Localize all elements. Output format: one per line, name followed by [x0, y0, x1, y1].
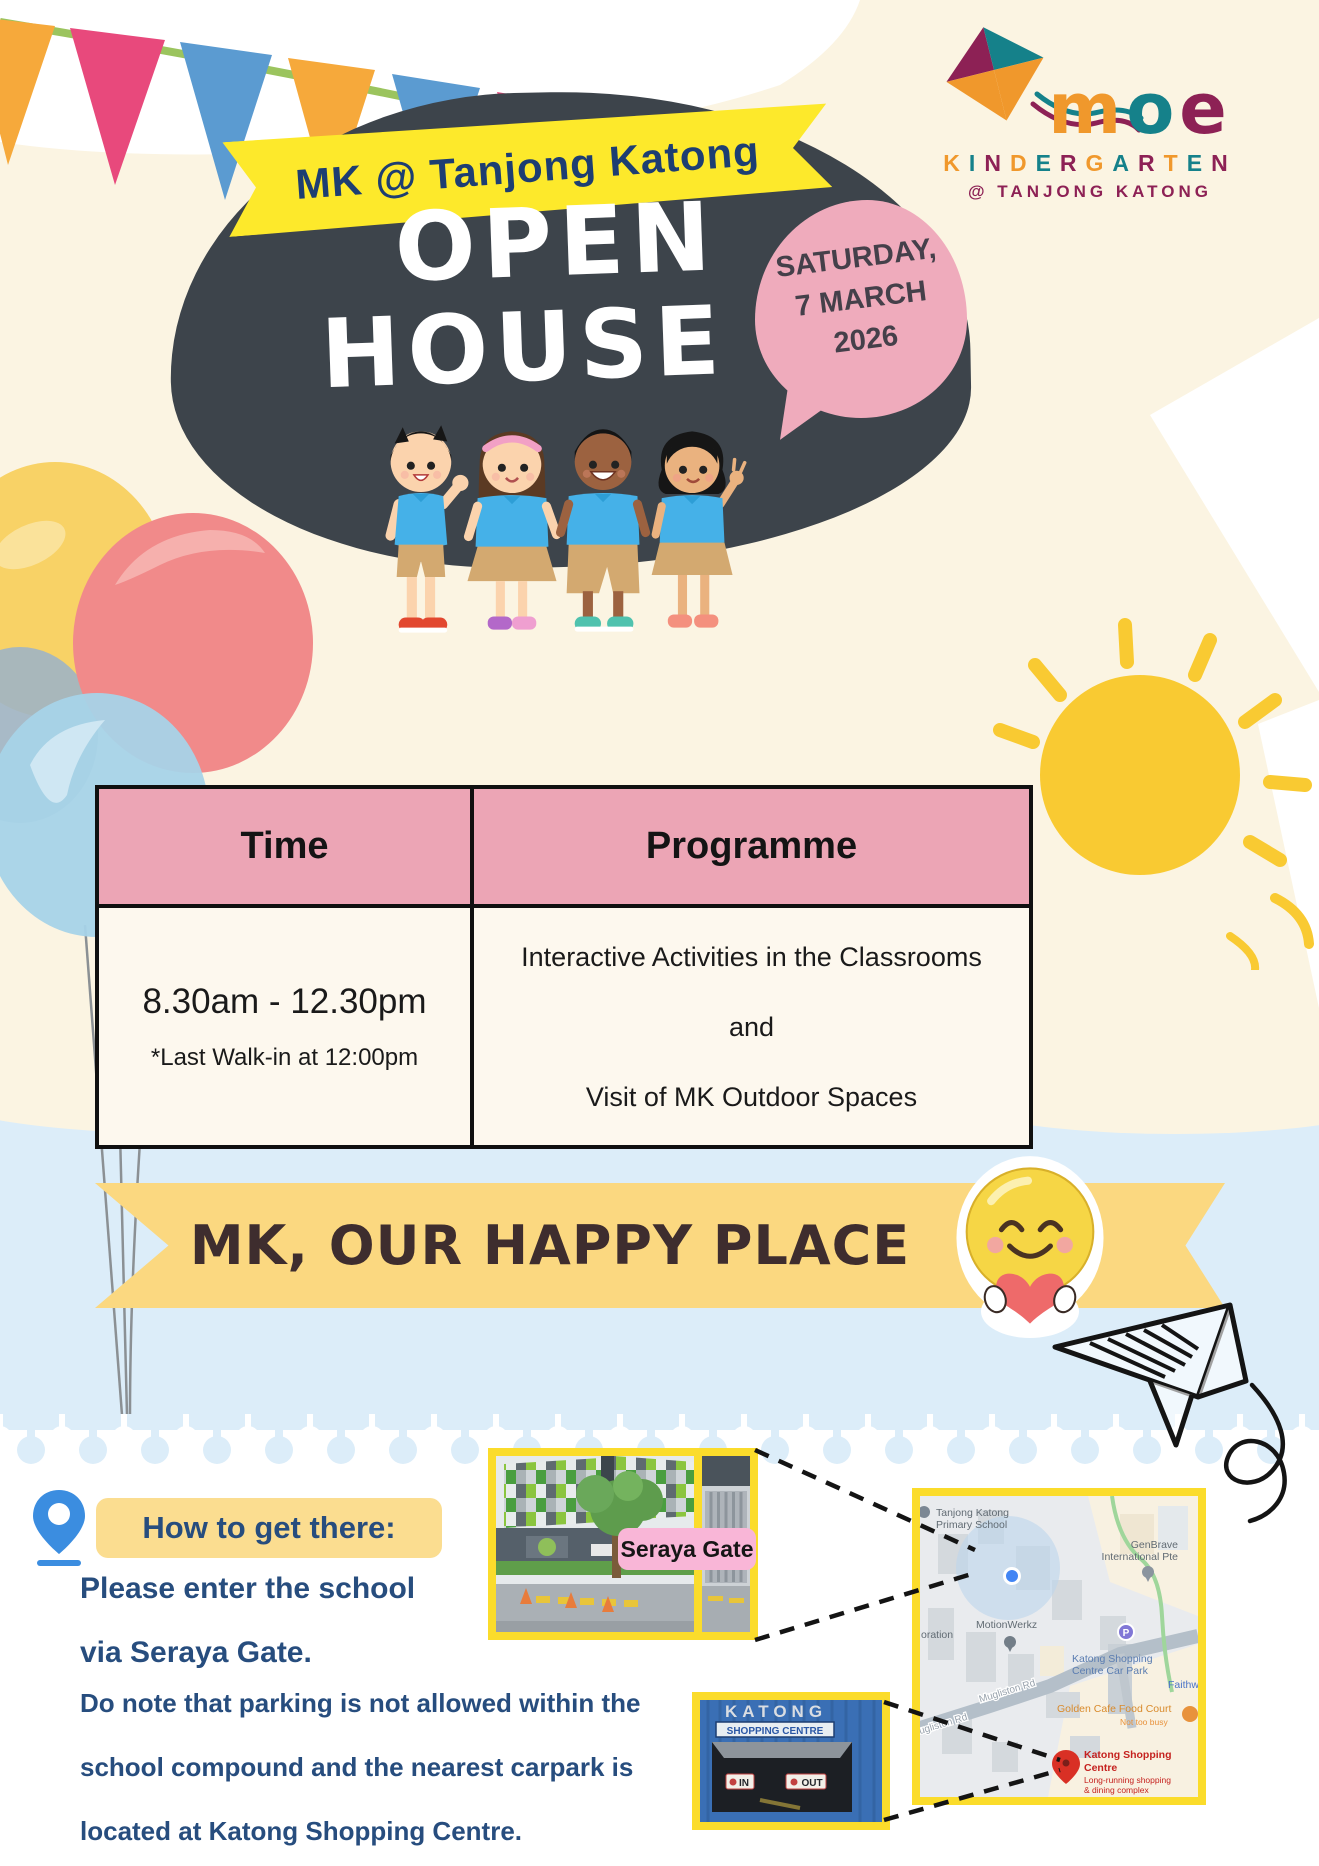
- map-image: P Tanjong Katong Primary School GenBrave…: [920, 1496, 1198, 1797]
- carpark-out-sign: OUT: [801, 1778, 822, 1789]
- carpark-photo: KATONG SHOPPING CENTRE IN OUT: [692, 1692, 890, 1830]
- logo-kindergarten: KINDERGARTEN: [895, 150, 1285, 177]
- parking-note-line2: school compound and the nearest carpark …: [80, 1752, 633, 1783]
- title-line2: HOUSE: [287, 288, 760, 408]
- location-pin-icon: [28, 1488, 90, 1574]
- logo-location: @ TANJONG KATONG: [915, 182, 1265, 202]
- time-note: *Last Walk-in at 12:00pm: [151, 1044, 418, 1072]
- map-label-motionwerkz: MotionWerkz: [976, 1619, 1037, 1631]
- map-label-partial: oration: [921, 1629, 953, 1641]
- map-label-genbrave-2: International Pte: [1102, 1551, 1179, 1563]
- seraya-gate-label-text: Seraya Gate: [621, 1536, 754, 1563]
- carpark-sign-top: KATONG: [725, 1702, 827, 1721]
- map-label-ksc-2: Centre: [1084, 1762, 1117, 1774]
- carpark-image: KATONG SHOPPING CENTRE IN OUT: [700, 1700, 882, 1822]
- map-label-ksc-1: Katong Shopping: [1084, 1749, 1171, 1761]
- children-illustration: [358, 403, 753, 661]
- title-line1: OPEN: [319, 183, 792, 303]
- moe-logo: moe KINDERGARTEN @ TANJONG KATONG: [855, 22, 1305, 207]
- table-header-time: Time: [99, 789, 474, 904]
- map-label-carpark-1: Katong Shopping: [1072, 1653, 1153, 1665]
- map-label-ksc-4: & dining complex: [1084, 1785, 1149, 1795]
- programme-line3: Visit of MK Outdoor Spaces: [586, 1062, 917, 1132]
- map-label-carpark-2: Centre Car Park: [1072, 1665, 1149, 1677]
- enter-instruction-line2: via Seraya Gate.: [80, 1636, 312, 1670]
- map-parking-letter: P: [1123, 1628, 1130, 1639]
- carpark-in-sign: IN: [739, 1778, 749, 1789]
- table-body-row: 8.30am - 12.30pm *Last Walk-in at 12:00p…: [99, 908, 1029, 1145]
- open-house-poster: moe KINDERGARTEN @ TANJONG KATONG SATURD…: [0, 0, 1319, 1866]
- programme-line1: Interactive Activities in the Classrooms: [521, 922, 982, 992]
- time-cell: 8.30am - 12.30pm *Last Walk-in at 12:00p…: [99, 908, 474, 1145]
- directions-heading-highlight: How to get there:: [96, 1498, 442, 1558]
- map-label-faith: Faithwo: [1168, 1679, 1198, 1691]
- logo-brand: moe: [1025, 74, 1255, 144]
- current-location-dot: [1005, 1569, 1020, 1584]
- carpark-sign-bottom: SHOPPING CENTRE: [727, 1726, 824, 1737]
- directions-heading: How to get there:: [142, 1510, 395, 1546]
- parking-note-line3: located at Katong Shopping Centre.: [80, 1816, 522, 1847]
- table-header-row: Time Programme: [99, 789, 1029, 908]
- happy-place-text: MK, OUR HAPPY PLACE: [190, 1214, 910, 1277]
- map-label-foodcourt-note: Not too busy: [1120, 1717, 1168, 1727]
- map-label-ksc-3: Long-running shopping: [1084, 1775, 1171, 1785]
- schedule-table: Time Programme 8.30am - 12.30pm *Last Wa…: [95, 785, 1033, 1149]
- map-label-school-2: Primary School: [936, 1519, 1007, 1531]
- map-pin-foodcourt: [1182, 1706, 1198, 1722]
- seraya-gate-label: Seraya Gate: [618, 1528, 756, 1570]
- time-value: 8.30am - 12.30pm: [142, 982, 426, 1022]
- programme-line2: and: [729, 992, 774, 1062]
- programme-cell: Interactive Activities in the Classrooms…: [474, 908, 1029, 1145]
- map-label-school-1: Tanjong Katong: [936, 1507, 1009, 1519]
- enter-instruction-line1: Please enter the school: [80, 1572, 415, 1606]
- map-label-genbrave-1: GenBrave: [1131, 1539, 1178, 1551]
- map-pin-carpark: P: [1118, 1624, 1134, 1640]
- parking-note-line1: Do note that parking is not allowed with…: [80, 1688, 640, 1719]
- map: P Tanjong Katong Primary School GenBrave…: [912, 1488, 1206, 1805]
- open-house-title: OPEN HOUSE: [292, 184, 769, 408]
- table-header-programme: Programme: [474, 789, 1029, 904]
- map-label-foodcourt: Golden Cafe Food Court: [1057, 1703, 1171, 1715]
